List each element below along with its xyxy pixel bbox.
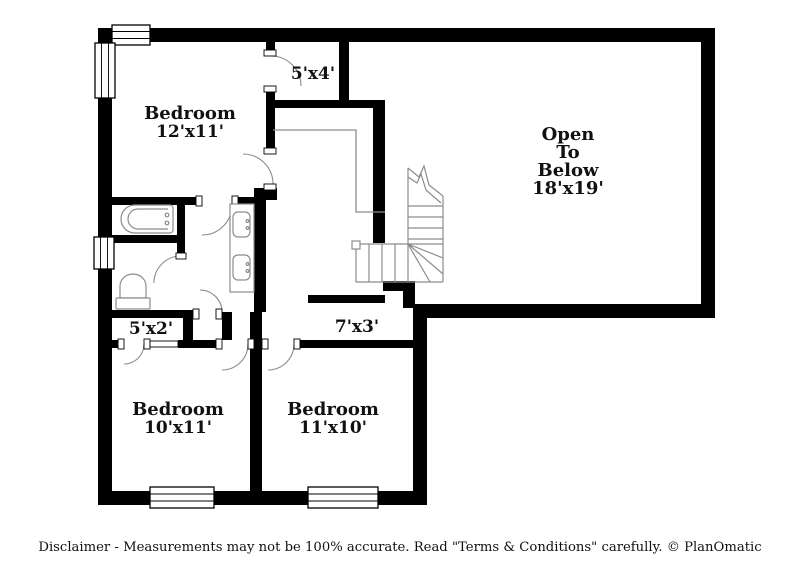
door-jamb xyxy=(144,339,150,349)
double-vanity-icon xyxy=(230,204,254,292)
door-jamb xyxy=(264,184,276,190)
window-left-upper xyxy=(95,43,115,98)
sink-icon xyxy=(233,255,250,280)
door-jamb xyxy=(216,339,222,349)
door-jamb xyxy=(264,148,276,154)
closet-shelf-segment xyxy=(150,341,178,347)
room-label-closet-top-dims: 5'x4' xyxy=(291,64,335,84)
room-label-bedroom-right-name: Bedroom xyxy=(287,399,379,420)
door-jamb xyxy=(262,339,268,349)
door-jamb xyxy=(193,309,199,319)
door-jamb xyxy=(196,196,202,206)
room-label-bedroom-top-dims: 12'x11' xyxy=(156,122,224,142)
tub-faucet xyxy=(165,213,169,217)
room-label-open-to-below: Open To Below 18'x19' xyxy=(532,124,604,199)
disclaimer-text: Disclaimer - Measurements may not be 100… xyxy=(38,540,761,555)
floor-plan-page: Bedroom 12'x11' 5'x4' Open To Below 18'x… xyxy=(0,0,800,582)
svg-text:18'x19': 18'x19' xyxy=(532,178,604,199)
window-left-lower xyxy=(94,237,114,269)
door-jamb xyxy=(118,339,124,349)
door-jamb xyxy=(176,253,186,259)
window-top xyxy=(112,25,150,45)
room-label-bedroom-right-dims: 11'x10' xyxy=(299,418,367,438)
tub-faucet xyxy=(165,221,169,225)
door-jamb xyxy=(264,86,276,92)
room-label-bedroom-left-dims: 10'x11' xyxy=(144,418,212,438)
window-bottom-left xyxy=(150,487,214,508)
door-jamb xyxy=(294,339,300,349)
window-bottom-right xyxy=(308,487,378,508)
room-label-bedroom-left-name: Bedroom xyxy=(132,399,224,420)
door-jamb xyxy=(248,339,254,349)
room-label-closet-mid-dims: 5'x2' xyxy=(129,319,173,339)
room-label-hall-dims: 7'x3' xyxy=(335,317,379,337)
floor-plan: Bedroom 12'x11' 5'x4' Open To Below 18'x… xyxy=(0,0,800,582)
sink-icon xyxy=(233,212,250,237)
door-jamb xyxy=(216,309,222,319)
door-jamb xyxy=(264,50,276,56)
bathtub-icon xyxy=(121,205,173,233)
stair-newel-post xyxy=(352,241,360,249)
room-label-bedroom-top-name: Bedroom xyxy=(144,103,236,124)
